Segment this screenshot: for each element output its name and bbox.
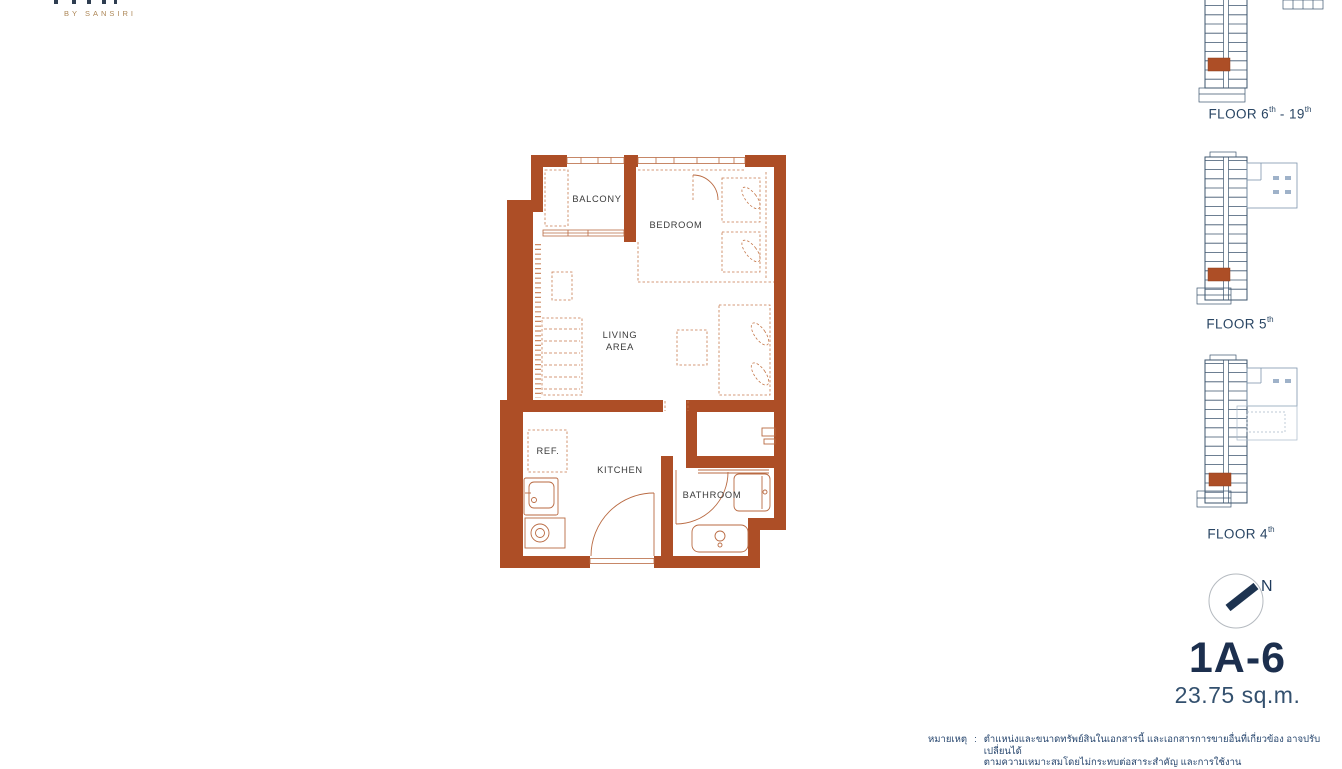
keyplan-caption-floor-6-19: FLOOR 6th - 19th [1160, 106, 1342, 122]
plan-windows [543, 158, 745, 564]
footnote: หมายเหตุ : ตำแหน่งและขนาดทรัพย์สินในเอกส… [928, 734, 1328, 769]
room-label-living-line1: LIVING [603, 330, 638, 340]
keyplan-floor-6-19 [1175, 0, 1325, 104]
unit-name: 1A-6 [1130, 637, 1342, 679]
keyplan-unit-highlight [1208, 58, 1230, 71]
footnote-line1: ตำแหน่งและขนาดทรัพย์สินในเอกสารนี้ และเอ… [984, 734, 1320, 757]
footnote-label: หมายเหตุ [928, 734, 967, 769]
room-label-living-line2: AREA [606, 342, 634, 352]
room-label-bathroom: BATHROOM [683, 490, 742, 500]
room-label-ref: REF. [537, 446, 560, 456]
room-label-balcony: BALCONY [572, 194, 621, 204]
footnote-line2: ตามความเหมาะสมโดยไม่กระทบต่อสาระสำคัญ แล… [984, 757, 1242, 768]
keyplan-unit-highlight [1208, 268, 1230, 281]
compass-needle [1228, 586, 1256, 608]
unit-summary: 1A-6 23.75 sq.m. [1130, 637, 1342, 709]
keyplan-unit-highlight [1209, 473, 1231, 486]
unit-area: 23.75 sq.m. [1130, 682, 1342, 709]
room-label-bedroom: BEDROOM [650, 220, 703, 230]
compass-north-label: N [1261, 578, 1273, 595]
plan-walls [500, 155, 786, 568]
keyplan-floor-5 [1175, 150, 1325, 310]
brand-byline: BY SANSIRI [64, 9, 136, 18]
room-label-kitchen: KITCHEN [597, 465, 643, 475]
compass-icon: N [1200, 565, 1290, 640]
plan-furniture-dashed [528, 170, 774, 472]
keyplan-caption-floor-4: FLOOR 4th [1141, 526, 1341, 542]
unit-floorplan: BALCONY BEDROOM LIVING AREA REF. KITCHEN… [498, 148, 790, 572]
keyplan-floor-4 [1175, 353, 1325, 513]
keyplan-caption-floor-5: FLOOR 5th [1140, 316, 1340, 332]
footnote-separator: : [974, 734, 977, 769]
logo-letter-remnants-icon [40, 0, 160, 8]
